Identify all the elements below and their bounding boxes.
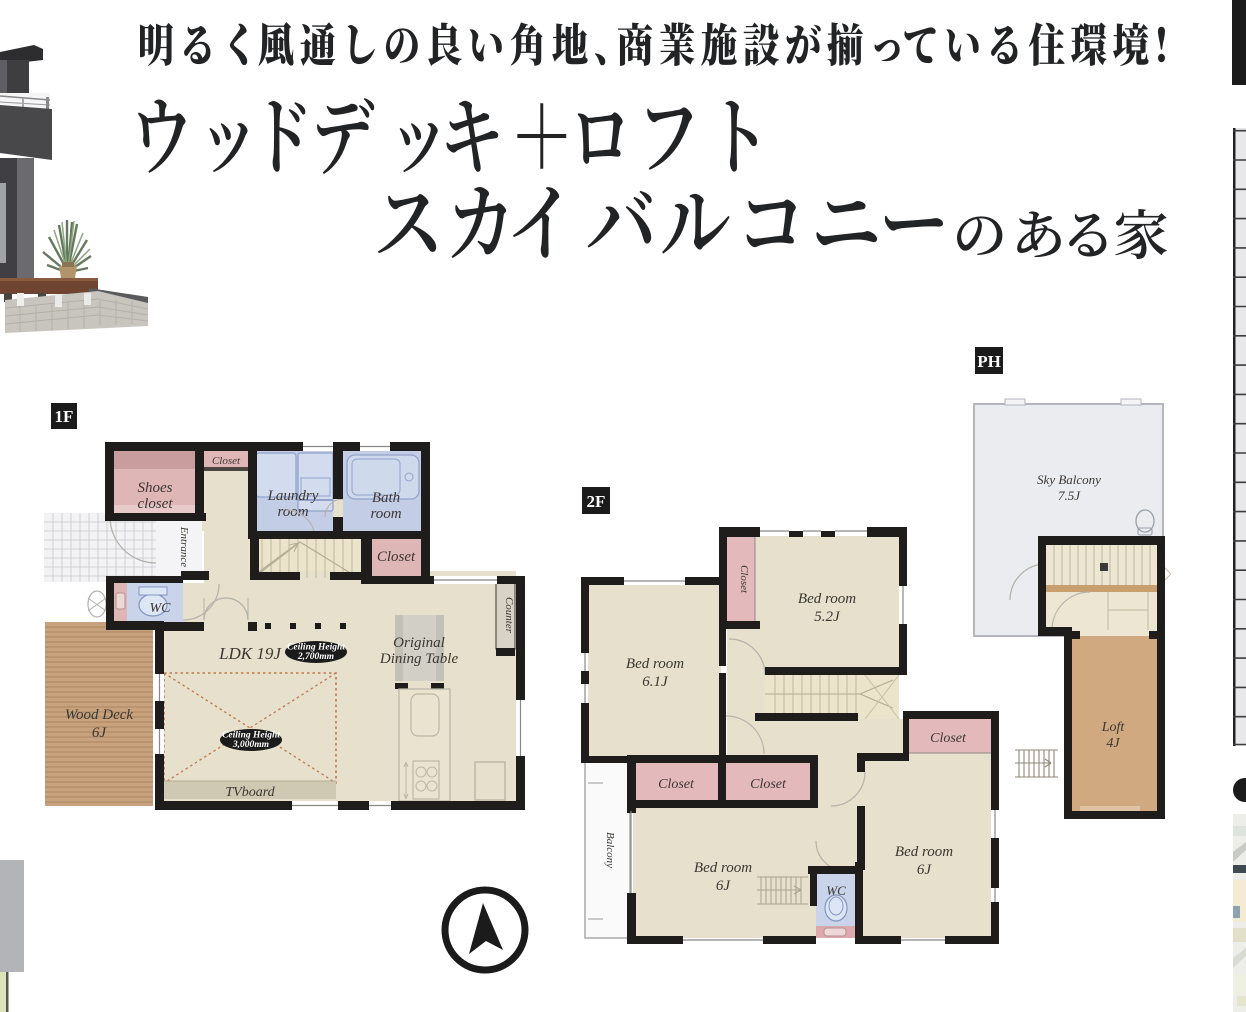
svg-text:Dining Table: Dining Table: [379, 651, 459, 667]
svg-text:Closet: Closet: [658, 777, 695, 792]
svg-text:LDK 19J: LDK 19J: [218, 644, 282, 663]
svg-text:2F: 2F: [587, 492, 606, 511]
svg-text:6.1J: 6.1J: [642, 674, 669, 690]
svg-text:Ceiling Height: Ceiling Height: [287, 643, 345, 653]
svg-text:6J: 6J: [917, 862, 933, 878]
svg-text:Original: Original: [393, 635, 445, 651]
svg-text:Wood Deck: Wood Deck: [65, 707, 134, 723]
svg-text:2,700mm: 2,700mm: [297, 652, 334, 662]
svg-text:Bed room: Bed room: [895, 844, 953, 860]
svg-text:Closet: Closet: [377, 549, 416, 565]
svg-text:WC: WC: [150, 601, 172, 616]
svg-text:1F: 1F: [55, 407, 74, 426]
svg-text:Bath: Bath: [372, 490, 400, 506]
svg-text:Sky Balcony: Sky Balcony: [1037, 472, 1101, 487]
svg-text:Bed room: Bed room: [626, 656, 684, 672]
svg-text:Laundry: Laundry: [267, 488, 319, 504]
svg-text:Bed room: Bed room: [798, 591, 856, 607]
svg-text:6J: 6J: [716, 878, 732, 894]
svg-text:Bed room: Bed room: [694, 860, 752, 876]
svg-text:Closet: Closet: [930, 731, 967, 746]
svg-text:Balcony: Balcony: [604, 832, 616, 868]
svg-text:TVboard: TVboard: [225, 785, 275, 800]
svg-text:room: room: [370, 506, 401, 522]
svg-text:6J: 6J: [92, 725, 108, 741]
svg-text:closet: closet: [138, 496, 174, 512]
svg-text:Counter: Counter: [503, 597, 515, 634]
svg-text:7.5J: 7.5J: [1058, 488, 1081, 503]
svg-text:Closet: Closet: [738, 565, 750, 594]
svg-text:PH: PH: [977, 352, 1001, 371]
svg-text:Closet: Closet: [212, 455, 241, 467]
svg-text:Loft: Loft: [1101, 720, 1126, 735]
svg-text:Ceiling Height: Ceiling Height: [222, 731, 280, 741]
svg-text:Closet: Closet: [750, 777, 787, 792]
svg-text:5.2J: 5.2J: [814, 609, 841, 625]
svg-text:room: room: [277, 504, 308, 520]
svg-text:Shoes: Shoes: [138, 480, 173, 496]
svg-text:3,000mm: 3,000mm: [232, 740, 269, 750]
svg-text:WC: WC: [826, 883, 846, 898]
svg-text:Entrance: Entrance: [178, 526, 190, 567]
svg-text:4J: 4J: [1106, 736, 1120, 751]
